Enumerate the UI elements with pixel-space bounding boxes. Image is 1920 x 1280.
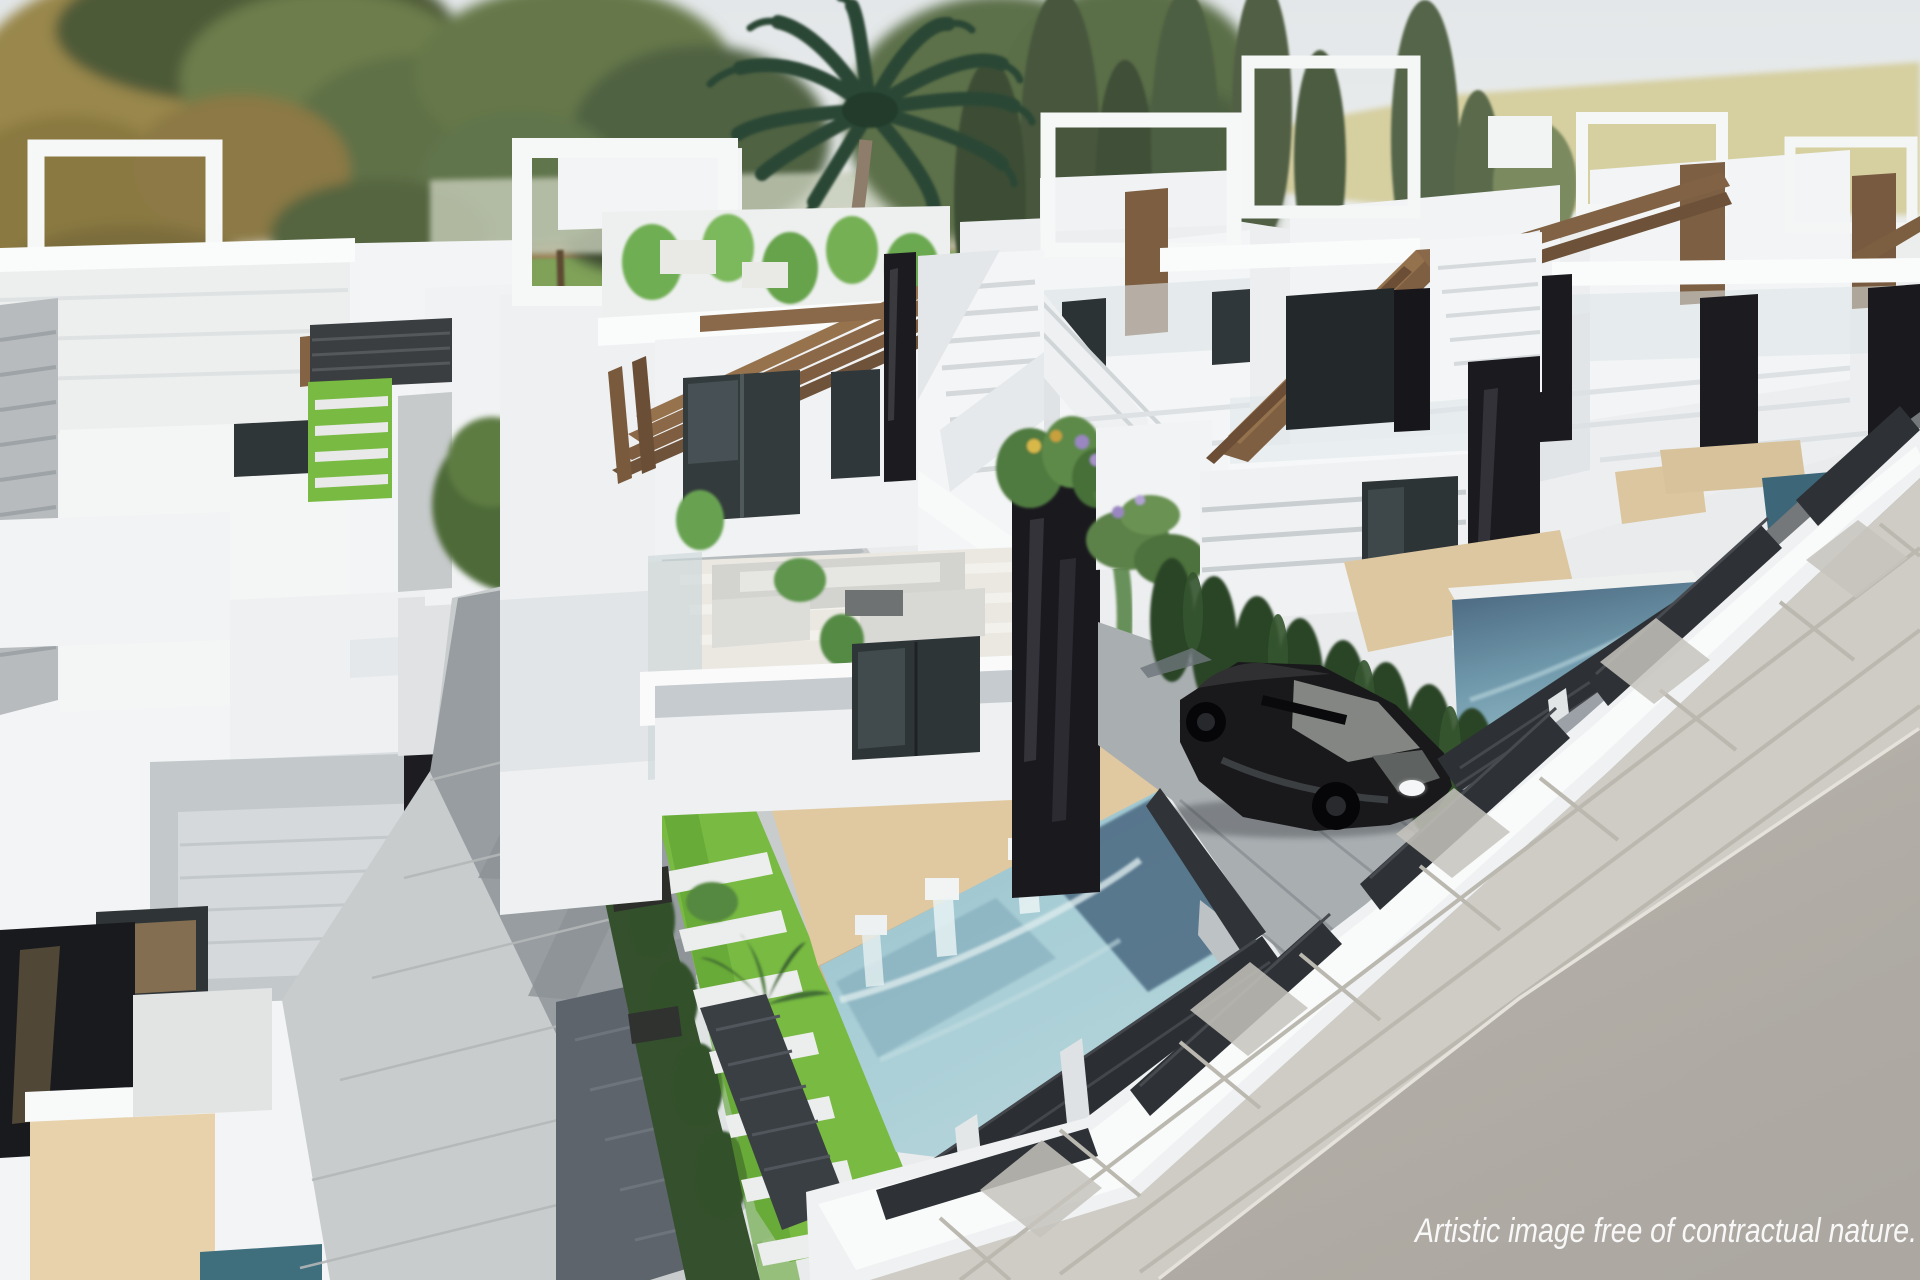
svg-text:Artistic image free of contrac: Artistic image free of contractual natur… — [1413, 1212, 1917, 1250]
